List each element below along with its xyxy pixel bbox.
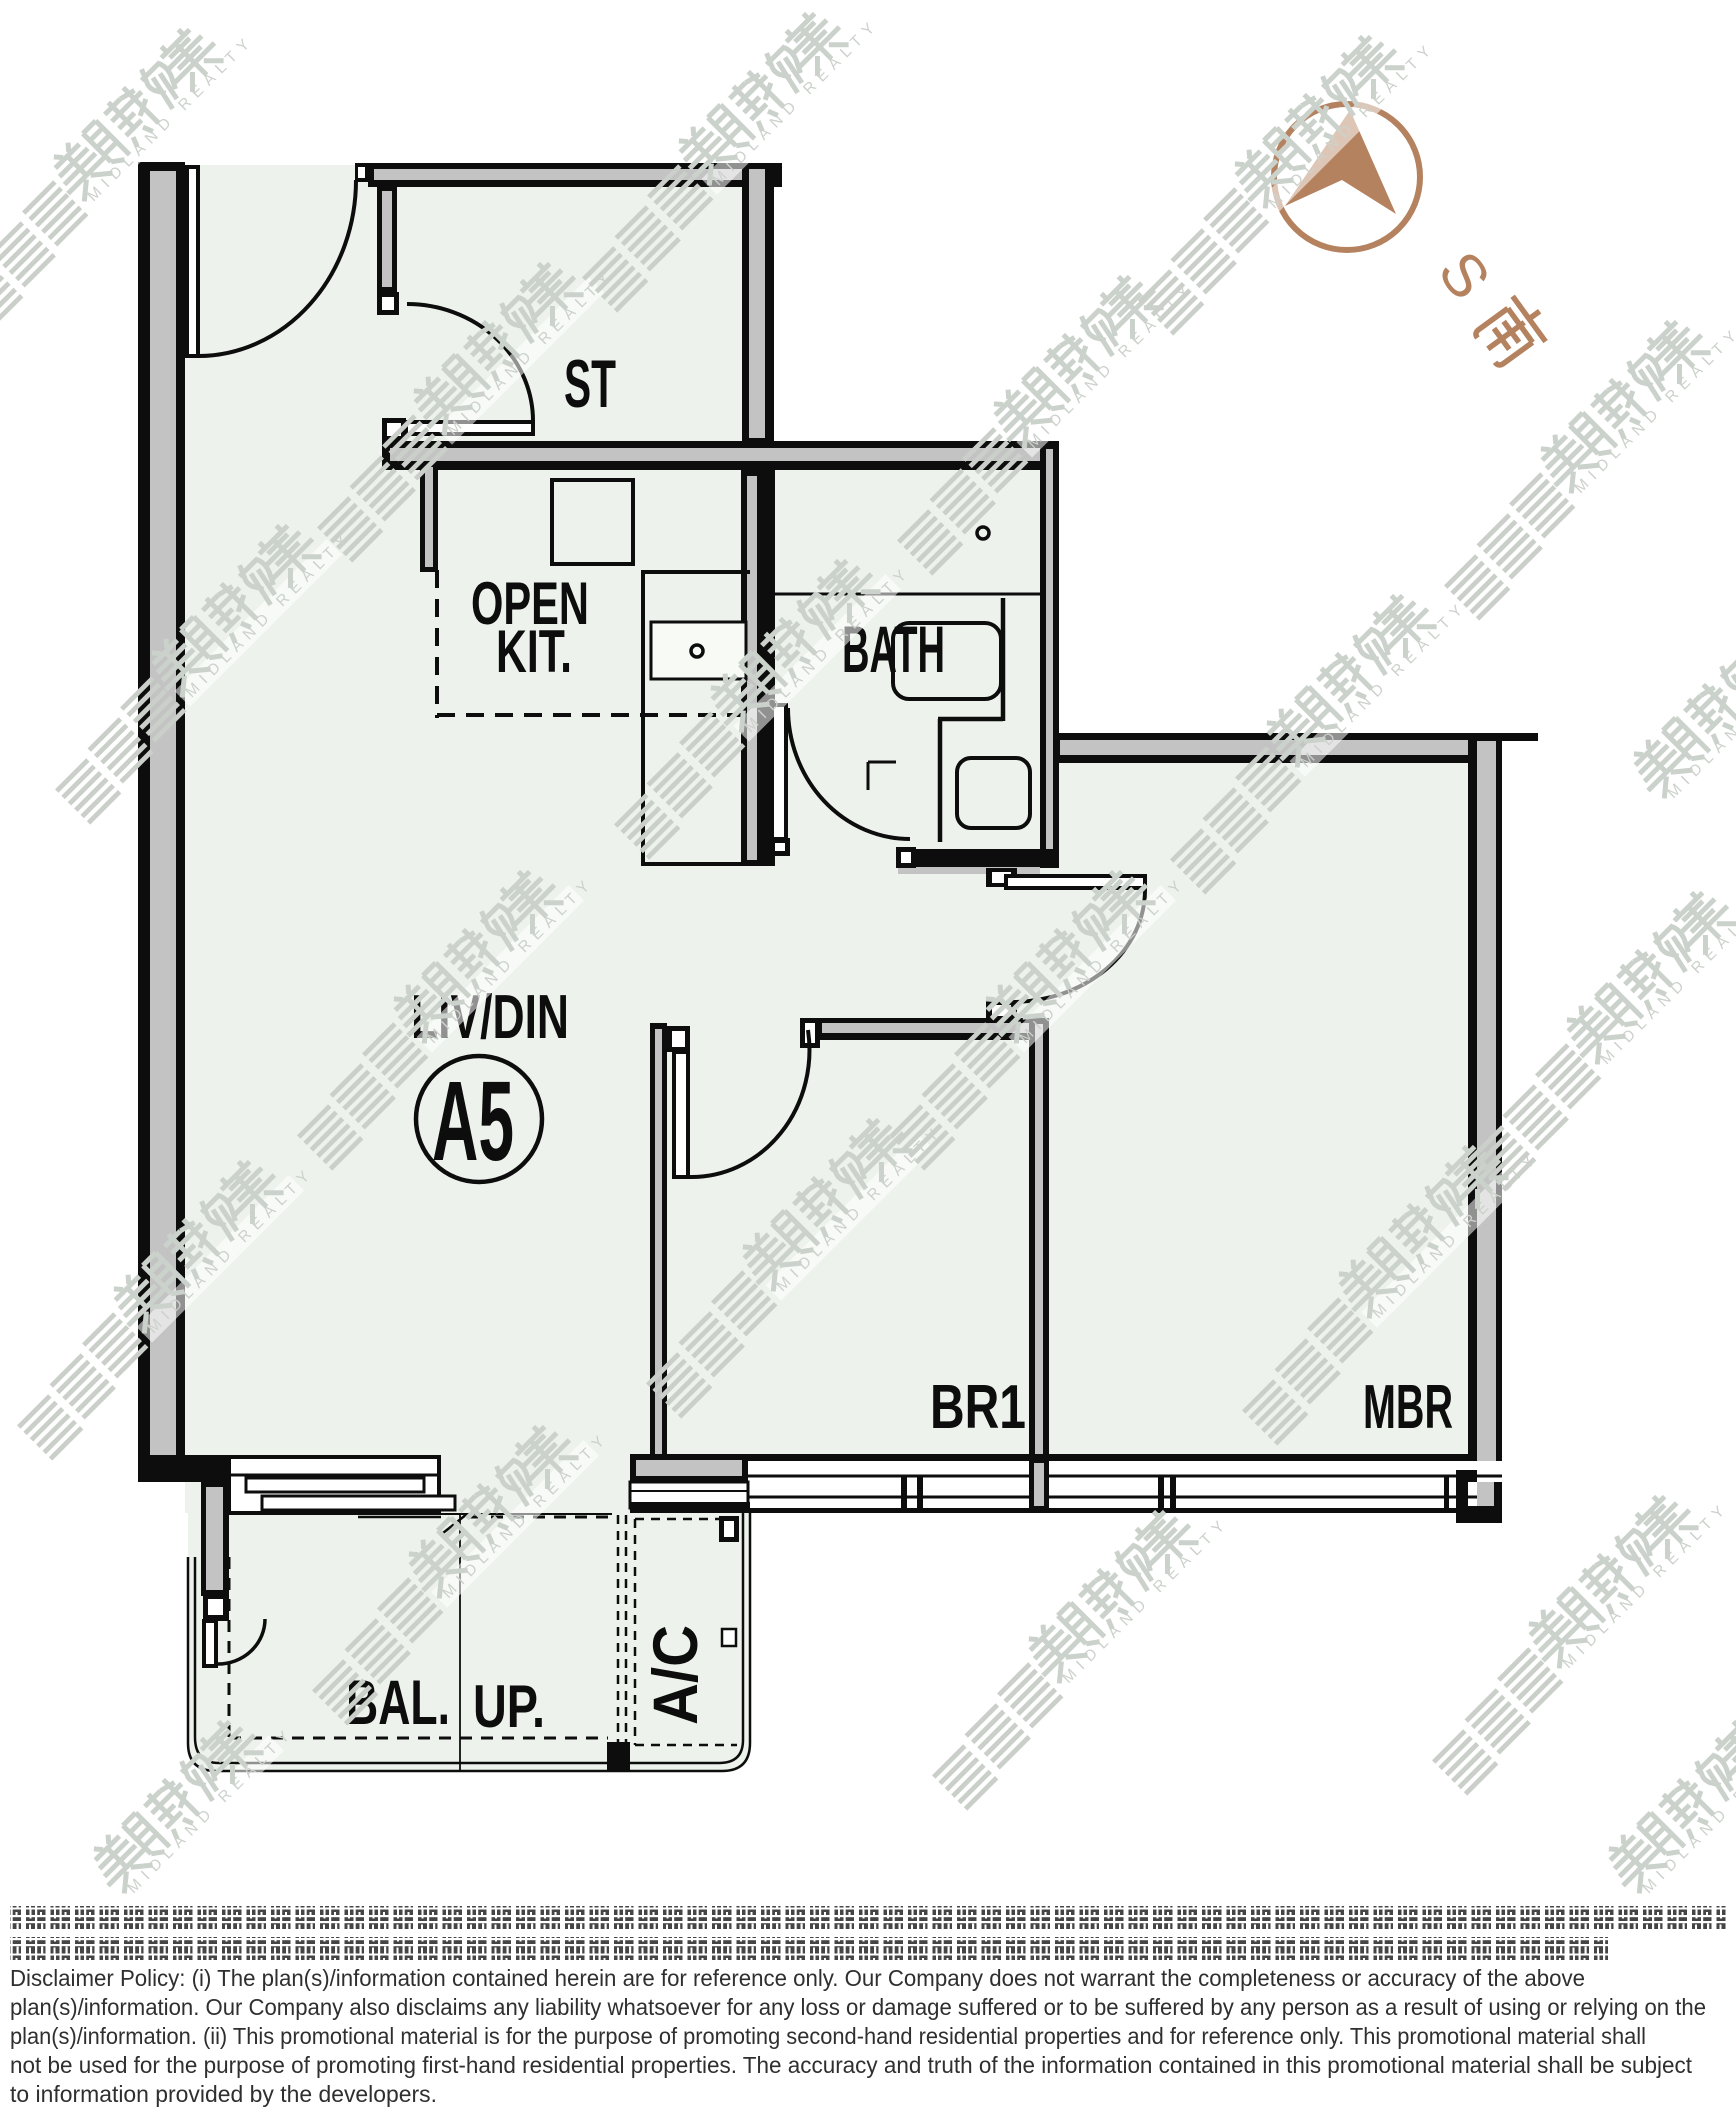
svg-text:MBR: MBR	[1363, 1373, 1453, 1442]
svg-text:not be used for the purpose of: not be used for the purpose of promoting…	[10, 2052, 1692, 2078]
svg-text:UP.: UP.	[473, 1673, 545, 1740]
svg-text:A/C: A/C	[641, 1625, 711, 1725]
svg-text:BR1: BR1	[930, 1373, 1026, 1442]
svg-text:KIT.: KIT.	[496, 618, 572, 685]
svg-text:to information provided by the: to information provided by the developer…	[10, 2081, 437, 2107]
svg-text:ST: ST	[564, 346, 616, 422]
svg-text:BAL.: BAL.	[346, 1668, 450, 1738]
svg-text:Disclaimer Policy: (i) The pla: Disclaimer Policy: (i) The plan(s)/infor…	[10, 1965, 1585, 1991]
svg-text:A5: A5	[432, 1058, 514, 1184]
svg-text:plan(s)/information. Our Compa: plan(s)/information. Our Company also di…	[10, 1994, 1706, 2020]
svg-text:plan(s)/information. (ii) This: plan(s)/information. (ii) This promotion…	[10, 2023, 1646, 2049]
